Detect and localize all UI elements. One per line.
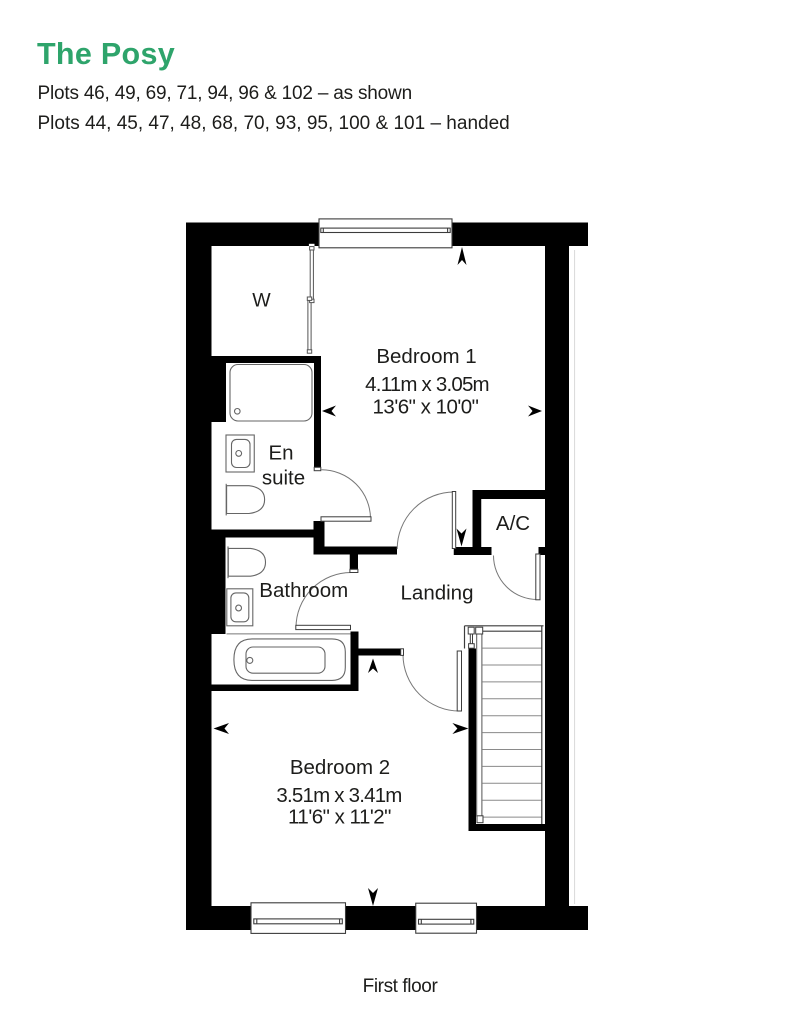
svg-text:Plots 44, 45, 47, 48, 68, 70,: Plots 44, 45, 47, 48, 68, 70, 93, 95, 10… bbox=[38, 113, 510, 134]
svg-text:Bathroom: Bathroom bbox=[259, 579, 348, 602]
svg-text:Bedroom 1: Bedroom 1 bbox=[376, 345, 476, 368]
svg-text:4.11m x 3.05m: 4.11m x 3.05m bbox=[365, 373, 489, 396]
svg-text:W: W bbox=[252, 290, 271, 312]
svg-text:suite: suite bbox=[262, 467, 305, 490]
svg-text:Landing: Landing bbox=[401, 582, 474, 605]
svg-text:13'6" x 10'0": 13'6" x 10'0" bbox=[373, 396, 479, 419]
svg-text:11'6" x 11'2": 11'6" x 11'2" bbox=[288, 806, 391, 829]
svg-text:Plots 46, 49, 69, 71, 94, 96 &: Plots 46, 49, 69, 71, 94, 96 & 102 – as … bbox=[38, 83, 412, 104]
svg-text:A/C: A/C bbox=[496, 512, 530, 535]
svg-text:En: En bbox=[268, 442, 293, 465]
svg-text:3.51m x 3.41m: 3.51m x 3.41m bbox=[276, 784, 401, 807]
svg-text:Bedroom 2: Bedroom 2 bbox=[290, 756, 390, 779]
svg-text:The Posy: The Posy bbox=[37, 37, 175, 71]
svg-text:First floor: First floor bbox=[363, 976, 439, 997]
